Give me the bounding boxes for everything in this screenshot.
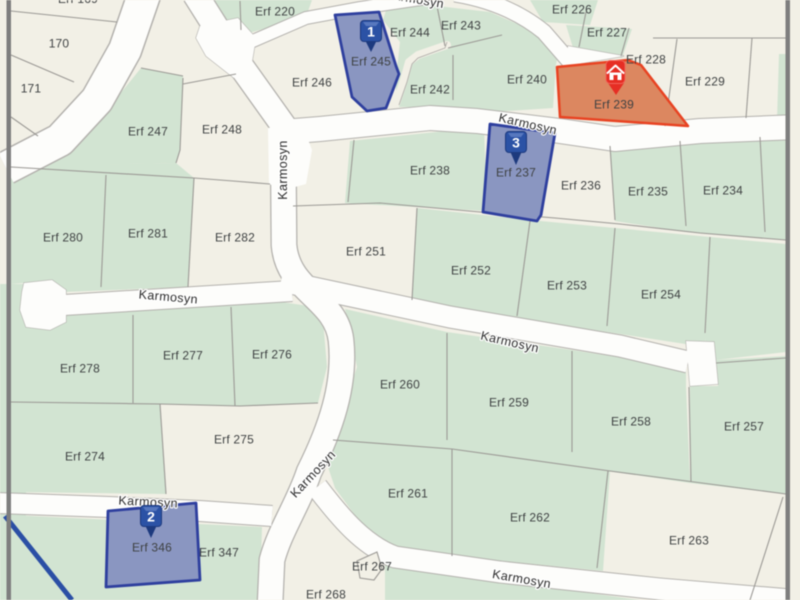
svg-text:Erf 278: Erf 278 (60, 362, 100, 376)
svg-text:Erf 227: Erf 227 (587, 26, 627, 40)
svg-text:Erf 220: Erf 220 (255, 5, 295, 19)
svg-text:Erf 226: Erf 226 (552, 3, 592, 17)
svg-text:171: 171 (21, 82, 42, 96)
svg-text:Erf 237: Erf 237 (496, 166, 536, 180)
svg-text:Erf 268: Erf 268 (306, 588, 346, 600)
svg-text:Erf 234: Erf 234 (703, 184, 743, 198)
svg-text:Erf 247: Erf 247 (128, 125, 168, 139)
svg-text:Erf 282: Erf 282 (215, 231, 255, 245)
svg-text:Erf 259: Erf 259 (489, 396, 529, 410)
svg-text:1: 1 (367, 24, 375, 40)
svg-text:Erf 253: Erf 253 (547, 279, 587, 293)
svg-text:Erf 267: Erf 267 (352, 560, 392, 574)
svg-text:2: 2 (147, 509, 155, 525)
svg-text:Erf 274: Erf 274 (65, 450, 105, 464)
svg-text:Erf 258: Erf 258 (611, 415, 651, 429)
svg-text:170: 170 (49, 37, 70, 51)
svg-text:Erf 346: Erf 346 (132, 541, 172, 555)
svg-text:Erf 169: Erf 169 (58, 0, 98, 6)
svg-text:Erf 263: Erf 263 (669, 534, 709, 548)
svg-text:Erf 281: Erf 281 (128, 227, 168, 241)
svg-text:Erf 246: Erf 246 (292, 76, 332, 90)
svg-text:Erf 251: Erf 251 (346, 245, 386, 259)
svg-text:Erf 242: Erf 242 (410, 83, 450, 97)
svg-text:Erf 261: Erf 261 (388, 487, 428, 501)
svg-text:Erf 262: Erf 262 (510, 511, 550, 525)
svg-text:Erf 248: Erf 248 (202, 123, 242, 137)
svg-text:Erf 277: Erf 277 (163, 349, 203, 363)
svg-text:Erf 245: Erf 245 (351, 55, 391, 69)
svg-text:Erf 347: Erf 347 (199, 546, 239, 560)
svg-text:Erf 239: Erf 239 (594, 98, 634, 112)
svg-text:Erf 236: Erf 236 (561, 179, 601, 193)
svg-text:Erf 229: Erf 229 (685, 75, 725, 89)
svg-text:Erf 240: Erf 240 (507, 73, 547, 87)
svg-text:Erf 252: Erf 252 (451, 264, 491, 278)
svg-text:Erf 254: Erf 254 (641, 288, 681, 302)
svg-text:Erf 257: Erf 257 (724, 420, 764, 434)
svg-text:Erf 238: Erf 238 (410, 164, 450, 178)
svg-text:Erf 243: Erf 243 (441, 19, 481, 33)
svg-text:Erf 235: Erf 235 (628, 185, 668, 199)
svg-text:Erf 228: Erf 228 (626, 53, 666, 67)
svg-text:Erf 276: Erf 276 (252, 348, 292, 362)
svg-text:Erf 244: Erf 244 (390, 26, 430, 40)
svg-text:Erf 275: Erf 275 (214, 433, 254, 447)
svg-text:Erf 280: Erf 280 (43, 231, 83, 245)
svg-text:Erf 260: Erf 260 (380, 378, 420, 392)
svg-text:3: 3 (512, 135, 520, 151)
svg-text:Karmosyn: Karmosyn (276, 140, 290, 199)
